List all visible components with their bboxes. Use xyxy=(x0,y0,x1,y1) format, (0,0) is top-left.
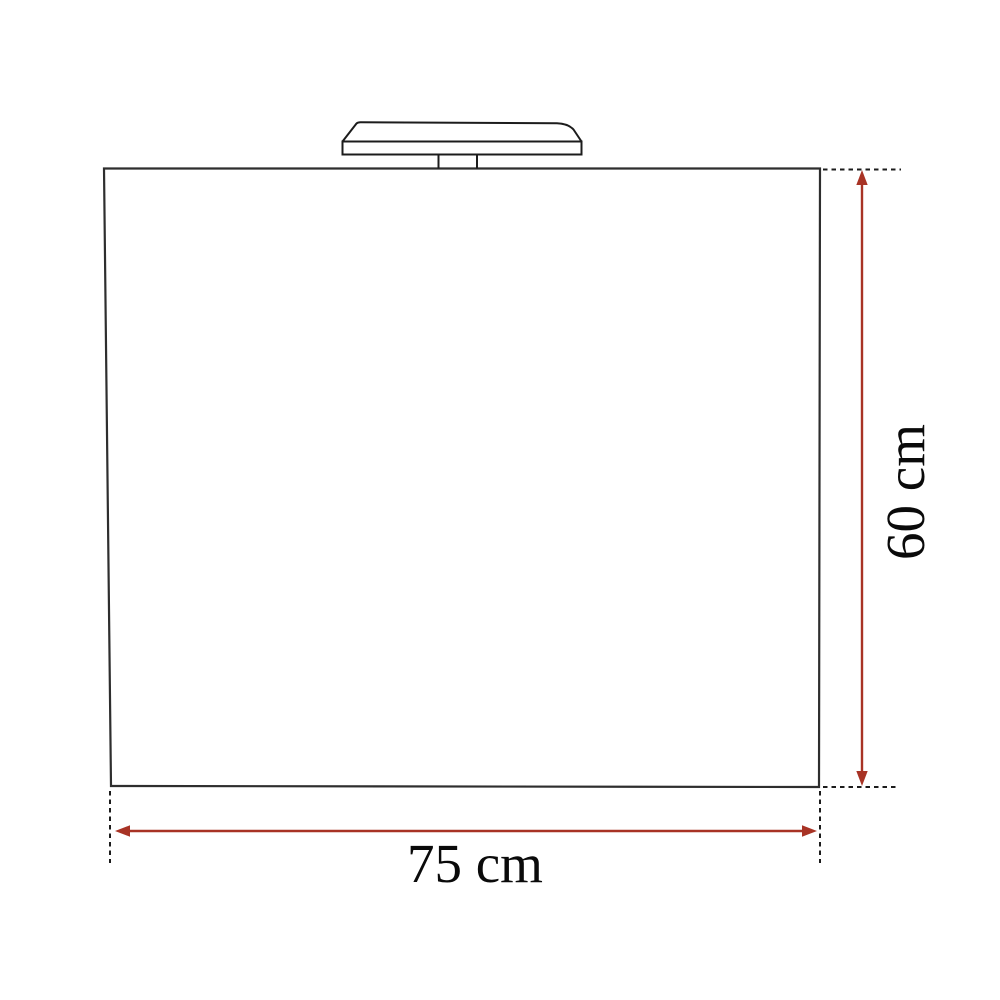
mirror-panel xyxy=(104,169,820,788)
arrowhead-up-icon xyxy=(856,170,867,185)
arrowhead-down-icon xyxy=(856,771,867,786)
lamp-fixture xyxy=(343,122,582,168)
height-dimension-arrow xyxy=(856,170,867,786)
dimension-diagram-page: 75 cm 60 cm xyxy=(0,0,1000,1000)
height-dimension-label: 60 cm xyxy=(875,424,936,560)
lamp-shade-icon xyxy=(343,122,582,141)
lamp-base-bar xyxy=(343,142,582,155)
width-dimension-label: 75 cm xyxy=(407,833,543,894)
arrowhead-left-icon xyxy=(115,825,130,836)
mirror-dimension-drawing: 75 cm 60 cm xyxy=(0,0,1000,1000)
arrowhead-right-icon xyxy=(802,825,817,836)
